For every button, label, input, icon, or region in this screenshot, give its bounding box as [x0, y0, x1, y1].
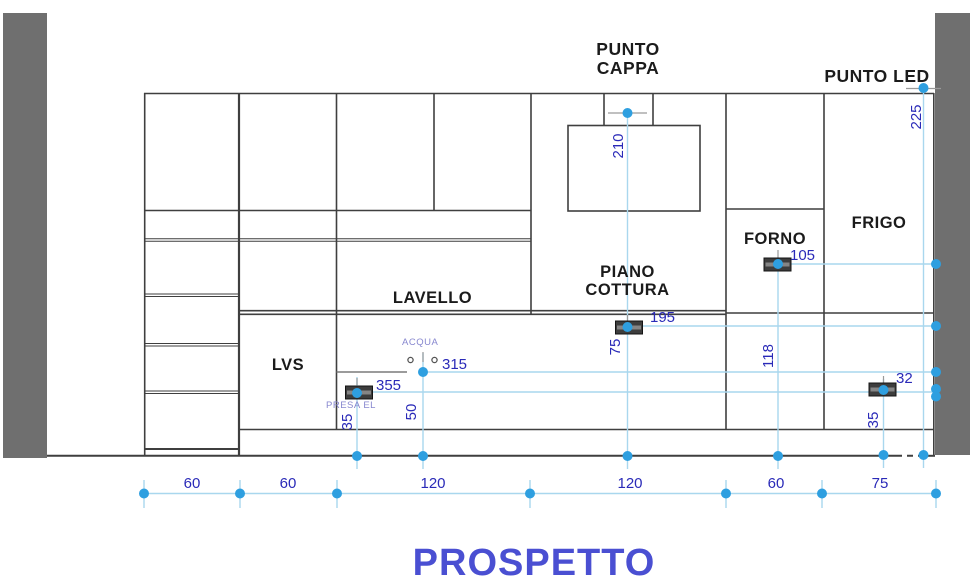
- crosshair-ticks: [357, 89, 941, 386]
- dim-bottom-75: 75: [850, 475, 910, 492]
- label-punto-cappa-line2: CAPPA: [558, 59, 698, 78]
- hood-point-dot: [623, 108, 633, 118]
- label-lvs: LVS: [240, 357, 336, 375]
- label-acqua: ACQUA: [402, 337, 438, 348]
- dim-50: 50: [403, 392, 419, 432]
- dim-35-right: 35: [865, 400, 881, 440]
- dimension-dots: [139, 83, 941, 499]
- dim-225: 225: [908, 97, 924, 137]
- cabinet-lines: [144, 93, 934, 455]
- drawing-title: PROSPETTO: [384, 542, 684, 581]
- acqua-symbol-icon: [432, 357, 437, 362]
- dimension-lines: [144, 88, 936, 508]
- dim-bottom-60-1: 60: [162, 475, 222, 492]
- dim-75: 75: [607, 327, 623, 367]
- label-frigo: FRIGO: [824, 215, 934, 233]
- dim-355: 355: [376, 377, 401, 394]
- dim-118: 118: [760, 336, 776, 376]
- dim-bottom-120-1: 120: [403, 475, 463, 492]
- kitchen-elevation-drawing: PUNTO CAPPA PUNTO LED FORNO FRIGO PIANO …: [0, 0, 970, 581]
- hood-box: [568, 126, 700, 212]
- label-punto-cappa-line1: PUNTO: [558, 40, 698, 59]
- dim-315: 315: [442, 356, 467, 373]
- acqua-point-dot: [418, 367, 428, 377]
- dim-bottom-60-2: 60: [258, 475, 318, 492]
- elevation-linework: [0, 0, 970, 581]
- dim-bottom-60-3: 60: [746, 475, 806, 492]
- drawer-stack-lines: [145, 294, 238, 449]
- dim-105: 105: [790, 247, 815, 264]
- label-punto-cappa: PUNTO CAPPA: [558, 40, 698, 78]
- label-piano-cottura: PIANO COTTURA: [560, 264, 695, 299]
- label-punto-led: PUNTO LED: [822, 67, 932, 86]
- dim-195: 195: [650, 309, 675, 326]
- dim-210: 210: [610, 126, 626, 166]
- dim-bottom-120-2: 120: [600, 475, 660, 492]
- dim-32: 32: [896, 370, 913, 387]
- acqua-symbol-icon: [408, 357, 413, 362]
- label-lavello: LAVELLO: [380, 290, 485, 308]
- dim-35-left: 35: [339, 402, 355, 442]
- label-piano-cottura-line1: PIANO: [560, 264, 695, 282]
- left-wall: [3, 13, 47, 458]
- label-piano-cottura-line2: COTTURA: [560, 282, 695, 300]
- label-forno: FORNO: [726, 231, 824, 249]
